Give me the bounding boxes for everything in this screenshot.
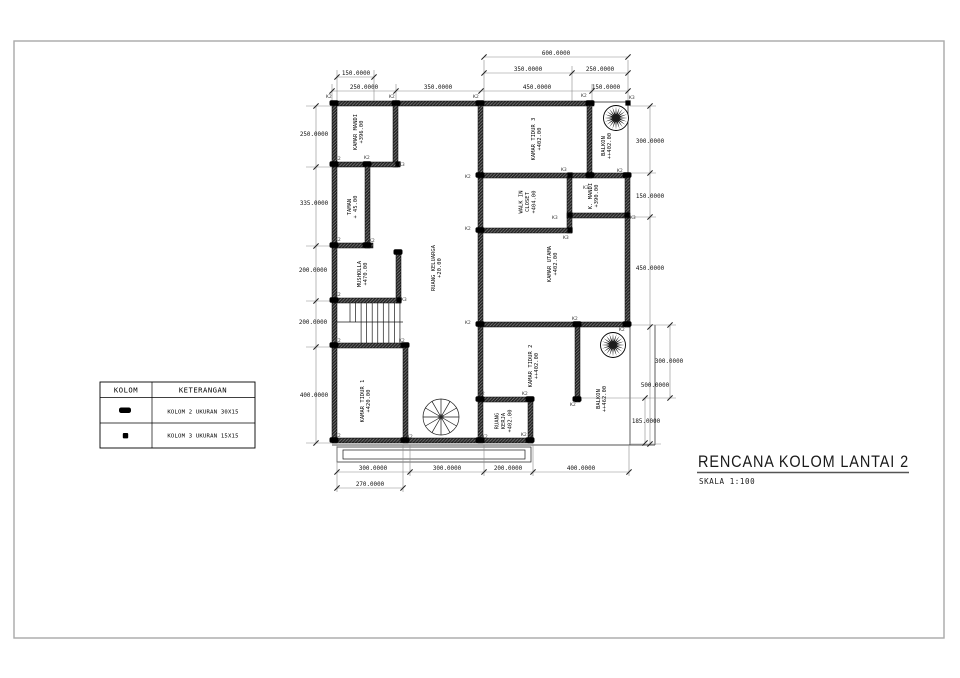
room-label: RUANG <box>495 413 501 429</box>
column-marker-k2 <box>623 321 632 327</box>
column-label: K2 <box>465 226 471 232</box>
room-label: +20.00 <box>437 258 443 278</box>
column-label: K2 <box>473 94 479 100</box>
column-label: K2 <box>617 168 623 174</box>
kolom-3-marker <box>123 433 128 438</box>
dimension-label: 600.0000 <box>542 51 571 57</box>
column-marker-k2 <box>476 172 485 178</box>
column-marker-k2 <box>330 297 339 303</box>
room-label: +396.00 <box>359 120 365 143</box>
room-label: KAMAR UTAMA <box>547 245 553 282</box>
column-label: K2 <box>335 156 341 162</box>
column-marker-k3 <box>624 212 629 217</box>
column-label: K2 <box>399 338 405 344</box>
column-marker-k2 <box>330 161 339 167</box>
room-label: BALKON <box>601 136 607 156</box>
room-label: KAMAR TIDUR 2 <box>528 345 534 388</box>
dimension-label: 150.0000 <box>342 71 371 77</box>
dimension-label: 250.0000 <box>300 132 329 138</box>
spiral-staircase <box>423 399 459 435</box>
room-label: WALK IN <box>519 190 525 213</box>
room-label: ++462.00 <box>602 386 608 412</box>
column-marker-k3 <box>567 212 572 217</box>
scale-label: SKALA 1:100 <box>699 477 755 486</box>
dimension-label: 350.0000 <box>424 85 453 91</box>
room-label: CLOSET <box>525 191 531 211</box>
column-marker-k2 <box>330 242 339 248</box>
dimension-label: 335.0000 <box>300 201 329 207</box>
column-label: K3 <box>563 235 569 241</box>
column-label: K2 <box>465 320 471 326</box>
dimension-label: 150.0000 <box>636 194 665 200</box>
column-marker-k2 <box>392 100 401 106</box>
column-label: K2 <box>389 94 395 100</box>
column-label: K2 <box>522 391 528 397</box>
column-label: K3 <box>401 297 407 303</box>
room-label: TAMAN <box>347 199 353 215</box>
dimension-label: 400.0000 <box>567 466 596 472</box>
column-marker-k3 <box>567 172 572 177</box>
dimension-label: 250.0000 <box>586 67 615 73</box>
column-label: K2 <box>619 327 625 333</box>
column-marker-k2 <box>623 172 632 178</box>
room-label: ++402.00 <box>534 353 540 379</box>
dimension-label: 150.0000 <box>592 85 621 91</box>
legend-row-label: KOLOM 2 UKURAN 30X15 <box>167 410 238 416</box>
column-marker-k2 <box>586 172 595 178</box>
room-label: + 45.00 <box>353 195 359 218</box>
column-label: K3 <box>629 95 635 101</box>
column-label: K2 <box>326 94 332 100</box>
room-label: +402.00 <box>507 409 513 432</box>
column-marker-k2 <box>526 396 535 402</box>
dimension-label: 300.0000 <box>636 139 665 145</box>
room-label: K. MANDI <box>588 183 594 209</box>
room-label: KERJA <box>501 412 507 429</box>
room-label: +404.00 <box>531 190 537 213</box>
column-marker-k2 <box>476 227 485 233</box>
room-label: +420.00 <box>366 389 372 412</box>
column-marker-k2 <box>573 396 582 402</box>
column-label: K2 <box>335 338 341 344</box>
column-label: K2 <box>570 402 576 408</box>
legend-row-label: KOLOM 3 UKURAN 15X15 <box>167 434 238 440</box>
room-label: KAMAR TIDUR 3 <box>531 118 537 161</box>
room-label: RUANG KELUARGA <box>431 244 437 291</box>
column-label: K2 <box>335 433 341 439</box>
column-label: K2 <box>369 238 375 244</box>
dimension-label: 350.0000 <box>514 67 543 73</box>
column-label: K2 <box>407 434 413 440</box>
column-label: K2 <box>335 292 341 298</box>
dimension-label: 450.0000 <box>636 266 665 272</box>
legend-col1-header: KOLOM <box>114 386 138 395</box>
room-label: KAMAR TIDUR 1 <box>360 380 366 423</box>
dimension-label: 300.0000 <box>359 466 388 472</box>
column-marker-k2 <box>394 249 403 255</box>
column-marker-k2 <box>363 161 372 167</box>
dimension-label: 300.0000 <box>655 359 684 365</box>
column-label: K2 <box>572 316 578 322</box>
column-marker-k2 <box>476 396 485 402</box>
room-label: +402.00 <box>537 127 543 150</box>
column-label: K2 <box>581 93 587 99</box>
column-label: K2 <box>465 174 471 180</box>
room-label: KAMAR MANDI <box>353 114 359 150</box>
column-label: K2 <box>482 434 488 440</box>
dimension-label: 500.0000 <box>641 383 670 389</box>
room-label: MUSHOLLA <box>357 260 363 287</box>
legend-col2-header: KETERANGAN <box>179 386 227 395</box>
dimension-label: 270.0000 <box>356 482 385 488</box>
column-label: K2 <box>335 237 341 243</box>
dimension-label: 250.0000 <box>350 85 379 91</box>
column-marker-k2 <box>586 100 595 106</box>
column-marker-k2 <box>526 437 535 443</box>
room-label: +470.00 <box>363 262 369 285</box>
dimension-label: 200.0000 <box>494 466 523 472</box>
dimension-label: 450.0000 <box>523 85 552 91</box>
floor-plan-drawing: K2K2K2K2K3K2K2K3K2K3K2K3K3K3K2K3K2K2K2K3… <box>0 0 960 678</box>
column-label: K3 <box>630 215 636 221</box>
column-label: K3 <box>552 215 558 221</box>
room-label: BALKON <box>596 389 602 409</box>
column-label: K2 <box>521 432 527 438</box>
column-marker-k2 <box>573 321 582 327</box>
column-marker-k2 <box>476 100 485 106</box>
column-marker-k3 <box>625 100 630 105</box>
page-title: RENCANA KOLOM LANTAI 2 <box>698 453 909 471</box>
dimension-label: 185.0000 <box>632 419 661 425</box>
dimension-label: 300.0000 <box>433 466 462 472</box>
dimension-label: 400.0000 <box>300 393 329 399</box>
column-label: K2 <box>364 155 370 161</box>
dimension-label: 200.0000 <box>299 268 328 274</box>
room-label: ++402.00 <box>607 133 613 159</box>
room-label: +402.00 <box>553 252 559 275</box>
kolom-2-marker <box>119 408 131 414</box>
column-marker-k2 <box>330 100 339 106</box>
column-label: K3 <box>561 167 567 173</box>
column-marker-k3 <box>567 227 572 232</box>
room-label: +390.00 <box>594 184 600 207</box>
column-label: K3 <box>399 162 405 168</box>
column-marker-k2 <box>476 321 485 327</box>
dimension-label: 200.0000 <box>299 320 328 326</box>
column-label: K2 <box>479 391 485 397</box>
